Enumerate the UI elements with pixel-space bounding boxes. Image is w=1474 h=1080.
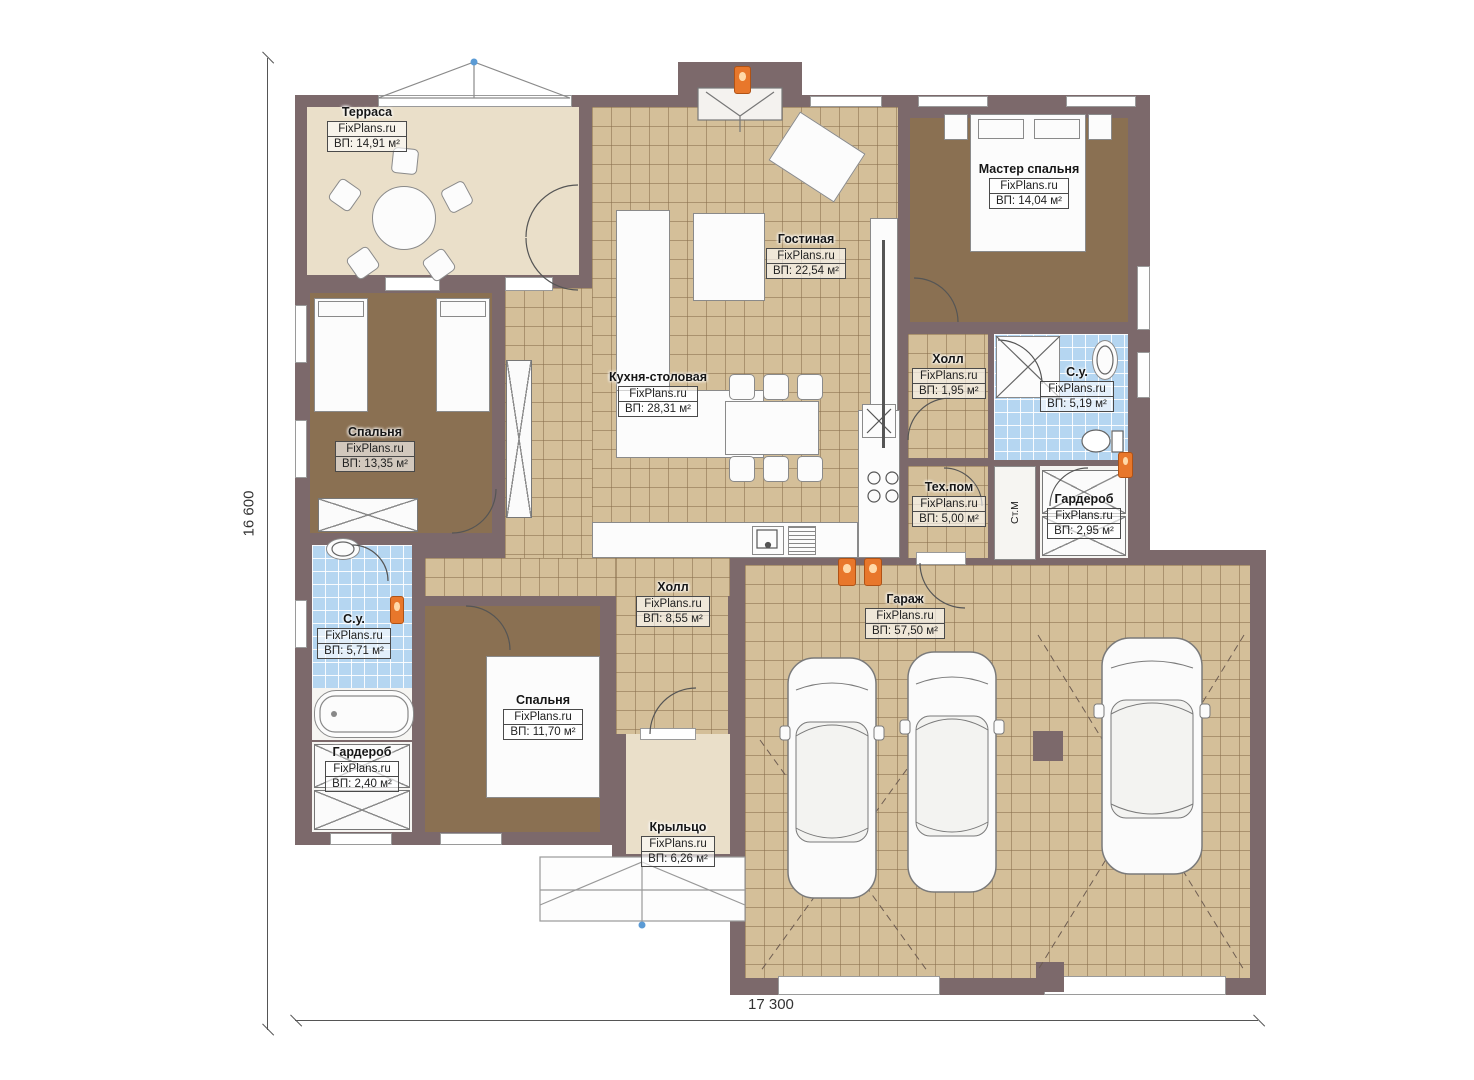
terrace-wall-window-2 bbox=[505, 277, 553, 291]
brand-watermark: FixPlans.ru bbox=[1048, 509, 1120, 523]
brand-watermark: FixPlans.ru bbox=[913, 497, 985, 511]
dish-rack bbox=[788, 526, 816, 555]
room-label-master-bedroom: Мастер спальня FixPlans.ru ВП: 14,04 м² bbox=[972, 162, 1086, 209]
bathroom-left-window bbox=[295, 600, 307, 648]
bottom-window-1 bbox=[330, 833, 392, 845]
brand-watermark: FixPlans.ru bbox=[866, 609, 944, 623]
pillow bbox=[978, 119, 1024, 139]
tv bbox=[882, 240, 885, 448]
dining-table bbox=[725, 401, 819, 455]
room-label-wardrobe-right: Гардероб FixPlans.ru ВП: 2,95 м² bbox=[1042, 492, 1126, 539]
room-label-bedroom-bottom: Спальня FixPlans.ru ВП: 11,70 м² bbox=[494, 693, 592, 740]
washing-machine-label: Ст.М bbox=[995, 467, 1035, 559]
brand-watermark: FixPlans.ru bbox=[637, 597, 709, 611]
coffee-table bbox=[693, 213, 765, 301]
room-area: ВП: 2,95 м² bbox=[1048, 523, 1120, 538]
kitchen-sink bbox=[752, 526, 784, 555]
room-area: ВП: 5,19 м² bbox=[1041, 396, 1113, 411]
porch-door-opening bbox=[640, 728, 696, 740]
room-label-porch: Крыльцо FixPlans.ru ВП: 6,26 м² bbox=[634, 820, 722, 867]
garage-column-2 bbox=[1036, 962, 1064, 992]
chair bbox=[729, 374, 755, 400]
chair bbox=[797, 374, 823, 400]
room-area: ВП: 28,31 м² bbox=[619, 401, 697, 416]
garage-house-door-opening bbox=[916, 552, 966, 565]
room-label-terrace: Терраса FixPlans.ru ВП: 14,91 м² bbox=[322, 105, 412, 152]
chair bbox=[797, 456, 823, 482]
room-area: ВП: 5,00 м² bbox=[913, 511, 985, 526]
room-name: Гардероб bbox=[1042, 492, 1126, 506]
room-area: ВП: 14,04 м² bbox=[990, 193, 1068, 208]
kitchen-counter-bottom bbox=[592, 522, 858, 558]
boiler-icon bbox=[838, 558, 856, 586]
room-name: Спальня bbox=[330, 425, 420, 439]
brand-watermark: FixPlans.ru bbox=[326, 762, 398, 776]
room-name: Кухня-столовая bbox=[600, 370, 716, 384]
room-label-kitchen: Кухня-столовая FixPlans.ru ВП: 28,31 м² bbox=[600, 370, 716, 417]
bottom-window-2 bbox=[440, 833, 502, 845]
room-name: Гардероб bbox=[318, 745, 406, 759]
brand-watermark: FixPlans.ru bbox=[642, 837, 714, 851]
chair bbox=[763, 456, 789, 482]
radiator-icon bbox=[1118, 452, 1133, 478]
brand-watermark: FixPlans.ru bbox=[913, 369, 985, 383]
master-window-1 bbox=[918, 96, 988, 107]
room-area: ВП: 13,35 м² bbox=[336, 456, 414, 471]
brand-watermark: FixPlans.ru bbox=[328, 122, 406, 136]
room-name: С.у. bbox=[314, 612, 394, 626]
room-area: ВП: 11,70 м² bbox=[504, 724, 581, 739]
room-label-bathroom-upper: С.у. FixPlans.ru ВП: 5,19 м² bbox=[1036, 365, 1118, 412]
round-table bbox=[372, 186, 436, 250]
nightstand bbox=[1088, 114, 1112, 140]
room-area: ВП: 57,50 м² bbox=[866, 623, 944, 638]
room-name: Спальня bbox=[494, 693, 592, 707]
wardrobe-cabinet bbox=[314, 790, 410, 830]
room-name: С.у. bbox=[1036, 365, 1118, 379]
room-area: ВП: 14,91 м² bbox=[328, 136, 406, 151]
porch-steps bbox=[540, 857, 745, 929]
floor-plan: Ст.М bbox=[0, 0, 1474, 1080]
room-label-bathroom-left: С.у. FixPlans.ru ВП: 5,71 м² bbox=[314, 612, 394, 659]
room-area: ВП: 22,54 м² bbox=[767, 263, 845, 278]
room-area: ВП: 1,95 м² bbox=[913, 383, 985, 398]
bedroom-closet bbox=[318, 498, 418, 532]
room-label-tech-room: Тех.пом FixPlans.ru ВП: 5,00 м² bbox=[912, 480, 986, 527]
room-label-hall-upper: Холл FixPlans.ru ВП: 1,95 м² bbox=[912, 352, 984, 399]
room-area: ВП: 5,71 м² bbox=[318, 643, 390, 658]
garage-door-1 bbox=[778, 976, 940, 995]
room-name: Гараж bbox=[858, 592, 952, 606]
room-label-wardrobe-left: Гардероб FixPlans.ru ВП: 2,40 м² bbox=[318, 745, 406, 792]
brand-watermark: FixPlans.ru bbox=[619, 387, 697, 401]
garage-door-2 bbox=[1044, 976, 1226, 995]
dimension-line-vertical bbox=[267, 58, 268, 1030]
room-area: ВП: 2,40 м² bbox=[326, 776, 398, 791]
garage-column bbox=[1033, 731, 1063, 761]
kitchen-hood bbox=[862, 404, 896, 438]
bathroom-sink bbox=[326, 538, 360, 560]
flame-icon bbox=[734, 66, 751, 94]
room-label-bedroom-left: Спальня FixPlans.ru ВП: 13,35 м² bbox=[330, 425, 420, 472]
room-name: Холл bbox=[636, 580, 710, 594]
brand-watermark: FixPlans.ru bbox=[504, 710, 581, 724]
nightstand bbox=[944, 114, 968, 140]
pillow bbox=[440, 301, 486, 317]
room-area: ВП: 8,55 м² bbox=[637, 611, 709, 626]
master-window-2 bbox=[1066, 96, 1136, 107]
dimension-label-height: 16 600 bbox=[240, 491, 257, 537]
master-window-right bbox=[1137, 266, 1150, 330]
brand-watermark: FixPlans.ru bbox=[767, 249, 845, 263]
pillow bbox=[1034, 119, 1080, 139]
bath-window-right bbox=[1137, 352, 1150, 398]
living-window bbox=[810, 96, 882, 107]
room-area: ВП: 6,26 м² bbox=[642, 851, 714, 866]
room-name: Крыльцо bbox=[634, 820, 722, 834]
brand-watermark: FixPlans.ru bbox=[336, 442, 414, 456]
brand-watermark: FixPlans.ru bbox=[318, 629, 390, 643]
room-name: Терраса bbox=[322, 105, 412, 119]
room-name: Гостиная bbox=[758, 232, 854, 246]
garage-floor bbox=[745, 565, 1250, 978]
bedroom-left-window-2 bbox=[295, 420, 307, 478]
brand-watermark: FixPlans.ru bbox=[990, 179, 1068, 193]
pillow bbox=[318, 301, 364, 317]
room-name: Тех.пом bbox=[912, 480, 986, 494]
terrace-wall-window-1 bbox=[385, 277, 440, 291]
room-name: Мастер спальня bbox=[972, 162, 1086, 176]
room-label-living: Гостиная FixPlans.ru ВП: 22,54 м² bbox=[758, 232, 854, 279]
room-name: Холл bbox=[912, 352, 984, 366]
bedroom-left-window-1 bbox=[295, 305, 307, 363]
chair bbox=[729, 456, 755, 482]
room-label-garage: Гараж FixPlans.ru ВП: 57,50 м² bbox=[858, 592, 952, 639]
chair bbox=[763, 374, 789, 400]
bathtub bbox=[314, 690, 414, 738]
brand-watermark: FixPlans.ru bbox=[1041, 382, 1113, 396]
terrace-canopy bbox=[378, 59, 570, 99]
room-label-hall-lower: Холл FixPlans.ru ВП: 8,55 м² bbox=[636, 580, 710, 627]
tall-cabinet bbox=[506, 360, 532, 518]
dimension-line-horizontal bbox=[295, 1020, 1258, 1021]
boiler-icon bbox=[864, 558, 882, 586]
washing-niche: Ст.М bbox=[994, 466, 1036, 560]
dimension-label-width: 17 300 bbox=[748, 996, 794, 1013]
